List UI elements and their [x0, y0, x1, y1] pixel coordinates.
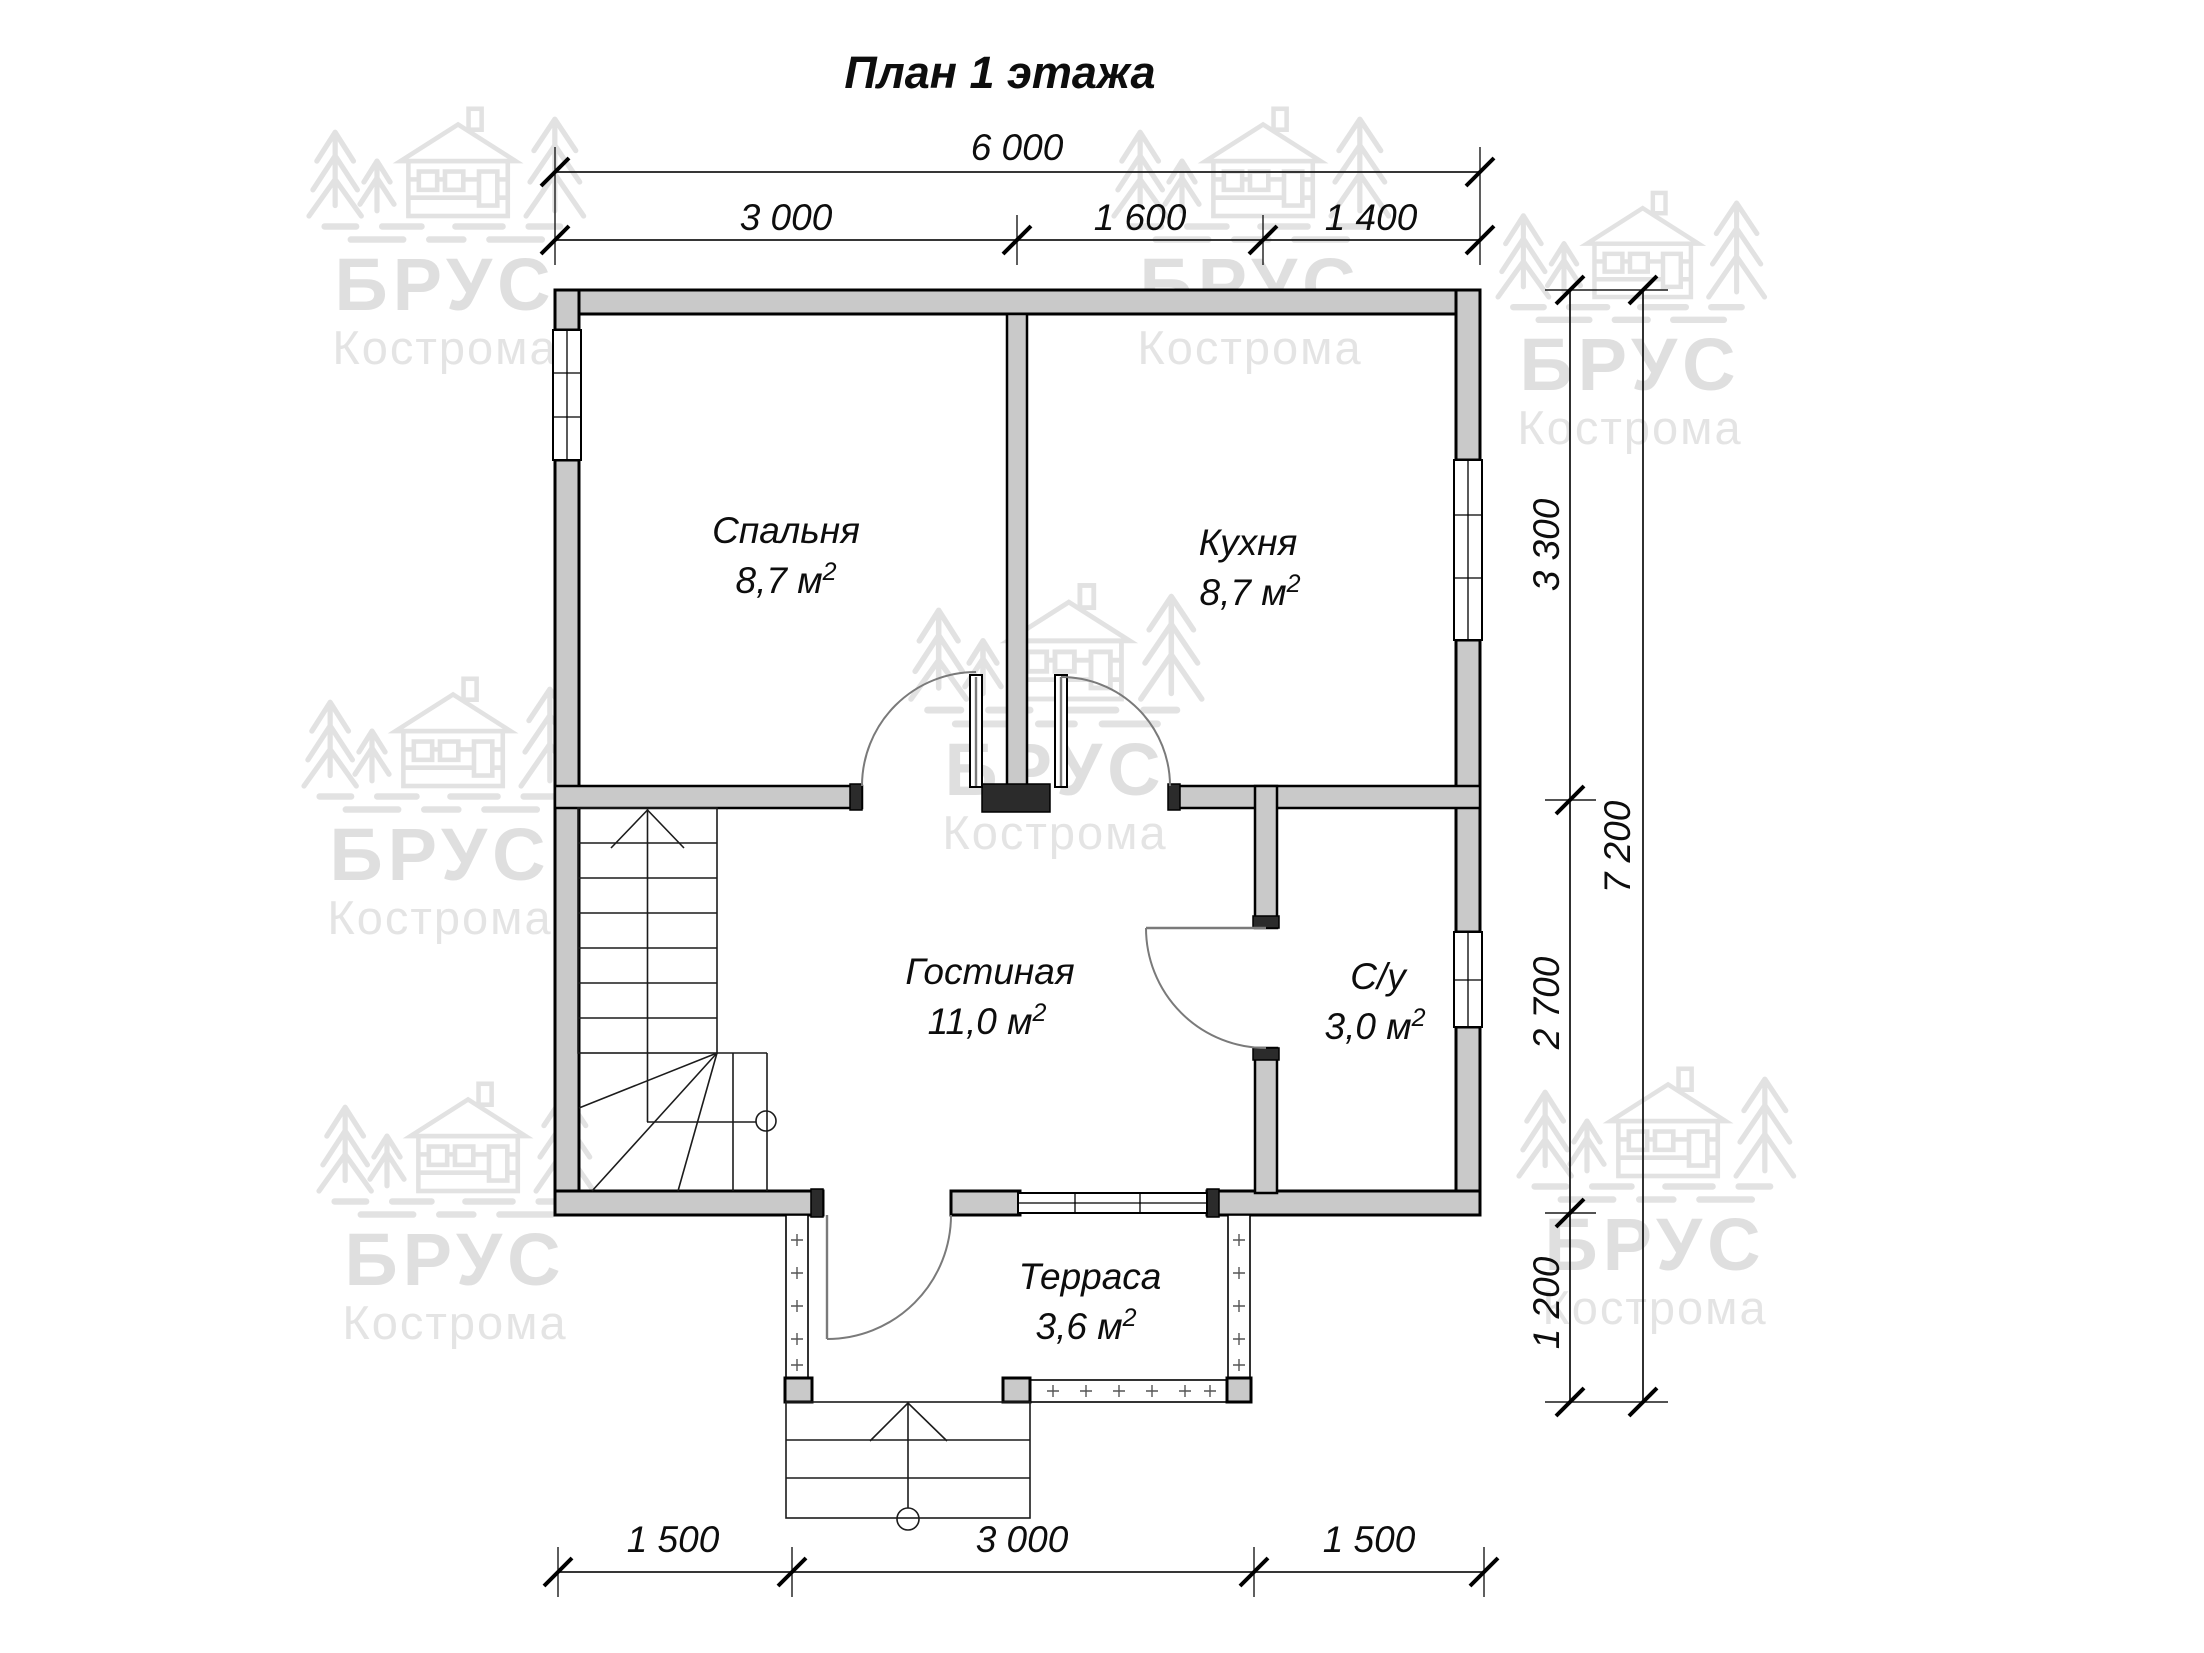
- dim-label-top-seg-3: 1 400: [1325, 197, 1418, 239]
- room-label-bedroom: Спальня: [712, 510, 860, 552]
- room-area-sup: 2: [823, 558, 837, 586]
- door-kitchen-icon: [1061, 677, 1170, 786]
- room-area-sup: 2: [1033, 999, 1047, 1027]
- window-kitchen-icon: [1454, 460, 1482, 640]
- page-title: План 1 этажа: [844, 47, 1155, 99]
- dim-label-bottom-seg-3: 1 500: [1323, 1519, 1416, 1561]
- room-label-kitchen: Кухня: [1199, 522, 1298, 564]
- room-label-terrace: Терраса: [1019, 1256, 1162, 1298]
- entrance-steps: [786, 1402, 1030, 1530]
- room-area-value: 3,0 м: [1325, 1006, 1412, 1047]
- floor-plan-drawing: [0, 0, 2204, 1653]
- dim-label-bottom-seg-1: 1 500: [627, 1519, 720, 1561]
- room-area-sup: 2: [1287, 570, 1301, 598]
- room-area-sup: 2: [1123, 1304, 1137, 1332]
- room-area-terrace: 3,6 м2: [1036, 1304, 1137, 1348]
- window-terrace-icon: [1018, 1193, 1207, 1213]
- stairs-up-arrow-icon: [611, 808, 776, 1131]
- staircase: [578, 808, 776, 1191]
- room-area-sup: 2: [1412, 1004, 1426, 1032]
- room-label-bathroom: С/у: [1350, 956, 1406, 998]
- room-area-bedroom: 8,7 м2: [736, 558, 837, 602]
- dim-label-top-seg-2: 1 600: [1094, 197, 1187, 239]
- terrace: [785, 1215, 1251, 1402]
- dim-label-right-seg-2: 2 700: [1526, 957, 1568, 1050]
- room-area-value: 3,6 м: [1036, 1306, 1123, 1347]
- room-label-living: Гостиная: [905, 951, 1074, 993]
- steps-up-arrow-icon: [870, 1403, 947, 1530]
- interior-walls: [555, 314, 1480, 1193]
- room-area-value: 8,7 м: [1200, 572, 1287, 613]
- door-bathroom-icon: [1146, 928, 1266, 1048]
- door-terrace-icon: [827, 1215, 951, 1339]
- dim-label-right-total: 7 200: [1597, 801, 1639, 894]
- floor-plan-page: БРУС Кострома БРУС Кострома БРУС Костром…: [0, 0, 2204, 1653]
- window-bathroom-icon: [1454, 932, 1482, 1027]
- dim-label-top-total: 6 000: [971, 127, 1064, 169]
- dim-label-right-seg-3: 1 200: [1526, 1257, 1568, 1350]
- dim-label-bottom-seg-2: 3 000: [976, 1519, 1069, 1561]
- room-area-kitchen: 8,7 м2: [1200, 570, 1301, 614]
- dim-label-right-seg-1: 3 300: [1526, 499, 1568, 592]
- room-area-bathroom: 3,0 м2: [1325, 1004, 1426, 1048]
- room-area-value: 8,7 м: [736, 560, 823, 601]
- door-bedroom-icon: [862, 672, 976, 786]
- window-bedroom-icon: [553, 330, 581, 460]
- room-area-value: 11,0 м: [928, 1001, 1033, 1042]
- dim-label-top-seg-1: 3 000: [740, 197, 833, 239]
- room-area-living: 11,0 м2: [928, 999, 1047, 1043]
